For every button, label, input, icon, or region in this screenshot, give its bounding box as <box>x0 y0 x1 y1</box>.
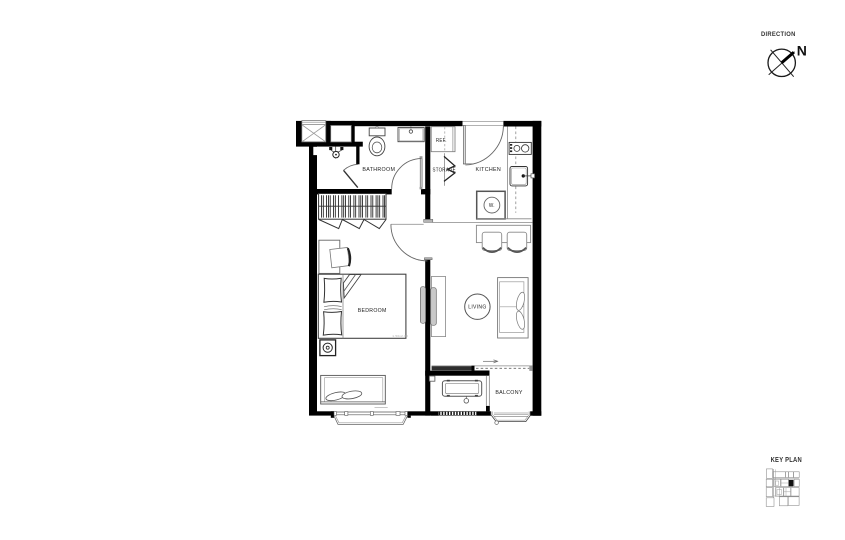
svg-text:DIRECTION: DIRECTION <box>761 31 796 38</box>
svg-text:BEDROOM: BEDROOM <box>358 308 387 314</box>
svg-text:BALCONY: BALCONY <box>495 390 522 396</box>
svg-text:KEY PLAN: KEY PLAN <box>771 455 802 464</box>
svg-text:KITCHEN: KITCHEN <box>476 167 502 173</box>
svg-text:STORAGE: STORAGE <box>433 167 456 173</box>
svg-text:LIVING: LIVING <box>468 305 486 311</box>
svg-text:N: N <box>797 42 807 58</box>
svg-text:REF.: REF. <box>436 138 447 144</box>
svg-text:W.: W. <box>489 203 495 209</box>
svg-text:1.50x2.00: 1.50x2.00 <box>392 334 408 338</box>
svg-text:BATHROOM: BATHROOM <box>362 167 395 173</box>
